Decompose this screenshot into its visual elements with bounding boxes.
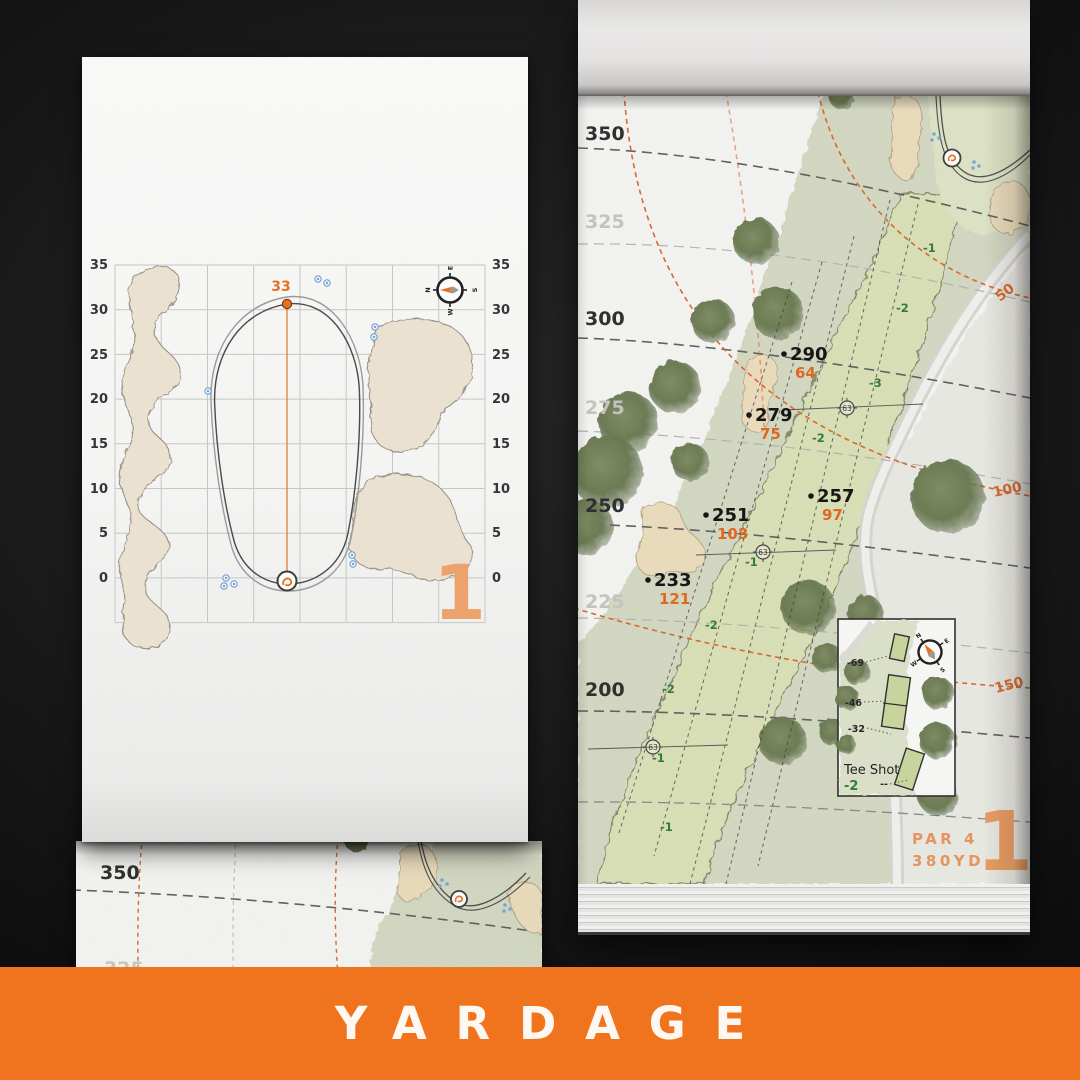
green-detail-chart: 3530 2520 1510 50 3530 2520 1510 50 33 xyxy=(82,57,528,842)
left-booklet-top-page: 3530 2520 1510 50 3530 2520 1510 50 33 xyxy=(82,57,528,842)
hole-map: 50 100 150 xyxy=(578,96,1030,884)
paper-grain xyxy=(578,96,1030,884)
right-booklet: 50 100 150 xyxy=(578,0,1030,932)
paper-grain xyxy=(82,57,528,842)
yardage-banner: YARDAGE xyxy=(0,967,1080,1080)
banner-title: YARDAGE xyxy=(306,997,774,1050)
right-page-stack-edge xyxy=(578,884,1030,935)
right-folded-page xyxy=(578,0,1030,96)
right-map-page: 50 100 150 xyxy=(578,96,1030,884)
under-page-fold-shadow xyxy=(76,841,542,855)
